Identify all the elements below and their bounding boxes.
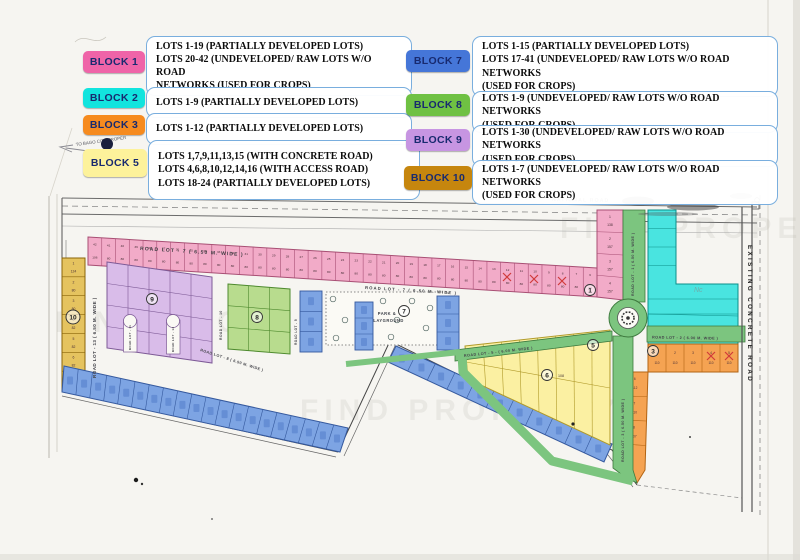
lot-number: 110	[672, 361, 677, 365]
lot-marker	[595, 445, 601, 453]
lot-number: 80	[162, 260, 166, 264]
lot-marker	[222, 410, 228, 418]
lot-marker	[334, 434, 340, 442]
legend-line: LOTS 4,6,8,10,12,14,16 (WITH ACCESS ROAD…	[158, 163, 410, 176]
lot-number: 80	[148, 259, 152, 263]
lot-number: 6	[73, 356, 75, 360]
road-label-11: ROAD LOT - 11	[128, 325, 132, 350]
lot-number: 80	[437, 277, 441, 281]
lot-number: 80	[107, 256, 111, 260]
lot-number: 27	[300, 255, 304, 259]
lot-number: 80	[410, 275, 414, 279]
lot-number: 80	[286, 267, 290, 271]
legend-line: LOTS 1-15 (PARTIALLY DEVELOPED LOTS)	[482, 40, 768, 53]
legend-line: (USED FOR CROPS)	[482, 189, 768, 202]
lot-number: 82	[72, 364, 76, 368]
block1-lot-column: 1138215731574157	[597, 210, 623, 300]
lot-number: 80	[465, 278, 469, 282]
scan-edge-bottom	[0, 554, 800, 560]
legend-badge-block-3: BLOCK 3	[83, 115, 145, 135]
lot-number: 80	[478, 279, 482, 283]
concrete-road-label: EXISTING CONCRETE ROAD	[746, 245, 753, 383]
road-label-12: ROAD LOT - 12	[171, 327, 175, 352]
lot-number: 5	[73, 337, 75, 341]
lot-number: 8	[562, 271, 564, 275]
lot-number: 13	[492, 267, 496, 271]
lot-number: 80	[451, 278, 455, 282]
legend-badge-block-2: BLOCK 2	[83, 88, 145, 108]
lot-marker	[308, 318, 314, 326]
lot-number: 1	[73, 261, 75, 265]
lot-marker	[292, 425, 298, 433]
lot-marker	[445, 337, 451, 345]
park-playground: PARK & PLAYGROUND	[326, 292, 448, 345]
road-label-13: ROAD LOT - 13 ( 6.50 M. WIDE )	[92, 297, 97, 378]
lot-marker	[123, 389, 129, 397]
lot-marker	[458, 382, 464, 390]
svg-text:8: 8	[255, 314, 259, 321]
legend-line: LOTS 1-30 (UNDEVELOPED/ RAW LOTS W/O ROA…	[482, 126, 768, 152]
marker-block-7: 7	[399, 306, 410, 317]
legend-box-block-10: LOTS 1-7 (UNDEVELOPED/ RAW LOTS W/O ROAD…	[472, 160, 778, 205]
lot-number: 20	[396, 261, 400, 265]
lot-marker	[306, 428, 312, 436]
lot-number: 80	[258, 266, 262, 270]
lot-number: 106	[92, 255, 97, 259]
lot-marker	[308, 338, 314, 346]
svg-text:7: 7	[402, 308, 406, 315]
lot-marker	[151, 395, 157, 403]
svg-text:5: 5	[591, 342, 595, 349]
lot-number: 80	[533, 283, 537, 287]
lot-number: 21	[382, 260, 386, 264]
legend-line: LOTS 1-7 (UNDEVELOPED/ RAW LOTS W/O ROAD…	[482, 163, 768, 189]
lot-number: 14	[478, 266, 482, 270]
lot-number: 30	[258, 253, 262, 257]
lot-number: 6	[634, 377, 636, 381]
legend-badge-block-9: BLOCK 9	[406, 129, 470, 151]
lot-marker	[445, 301, 451, 309]
lot-marker	[208, 407, 214, 415]
legend-badge-block-8: BLOCK 8	[406, 94, 470, 116]
lot-marker	[361, 338, 367, 346]
lot-number: 157	[607, 289, 613, 293]
lot-number: 138	[607, 223, 613, 227]
lot-number: 1	[609, 215, 611, 219]
lot-marker	[361, 306, 367, 314]
road-lot-3	[613, 336, 637, 483]
lot-marker	[418, 364, 424, 372]
lot-number: 157	[607, 245, 613, 249]
lot-number: 80	[272, 266, 276, 270]
lot-marker	[308, 297, 314, 305]
legend-line: LOTS 20-42 (UNDEVELOPED/ RAW LOTS W/O RO…	[156, 53, 402, 79]
lot-number: 80	[134, 258, 138, 262]
lot-number: 42	[93, 242, 97, 246]
lot-number: 80	[506, 281, 510, 285]
legend-line: LOTS 17-41 (UNDEVELOPED/ RAW LOTS W/O RO…	[482, 53, 768, 79]
lot-number: 124	[71, 269, 77, 273]
lot-marker	[236, 413, 242, 421]
lot-marker	[536, 418, 542, 426]
lot-number: 25	[327, 257, 331, 261]
park-label-1: PARK &	[378, 311, 396, 316]
lot-number: 80	[341, 271, 345, 275]
legend-line: LOTS 1-19 (PARTIALLY DEVELOPED LOTS)	[156, 40, 402, 53]
lot-number: 110	[654, 361, 659, 365]
legend-box-block-7: LOTS 1-15 (PARTIALLY DEVELOPED LOTS) LOT…	[472, 36, 778, 97]
svg-text:3: 3	[651, 348, 655, 355]
lot-number: 40	[121, 244, 125, 248]
lot-number: 110	[726, 361, 731, 365]
lot-marker	[556, 427, 562, 435]
lot-number: 3	[609, 259, 611, 263]
watermark-text: FIND PROPERTY	[560, 212, 800, 245]
lot-number: 110	[708, 361, 713, 365]
legend-badge-block-7: BLOCK 7	[406, 50, 470, 72]
legend-box-block-5: LOTS 1,7,9,11,13,15 (WITH CONCRETE ROAD)…	[148, 140, 420, 200]
lot-number: 17	[437, 264, 441, 268]
lot-number: 11	[520, 269, 523, 273]
lot-number: 3	[73, 299, 75, 303]
roundabout	[609, 299, 647, 337]
lot-number: 80	[244, 265, 248, 269]
lot-number: 80	[189, 261, 193, 265]
lot-number: 80	[176, 261, 180, 265]
lot-number: 80	[382, 273, 386, 277]
road-label-3: ROAD LOT - 3 ( 6.50 M. WIDE )	[621, 398, 625, 462]
legend-line: LOTS 1,7,9,11,13,15 (WITH CONCRETE ROAD)	[158, 150, 410, 163]
lot-number: 80	[561, 284, 565, 288]
lot-number: 39	[134, 245, 138, 249]
lot-number: 18	[423, 263, 427, 267]
lot-number: 80	[300, 268, 304, 272]
lot-number: 80	[203, 262, 207, 266]
road-label-9: ROAD LOT - 9	[294, 319, 298, 345]
lot-marker	[179, 401, 185, 409]
lot-number: 80	[492, 280, 496, 284]
lot-number: 8	[633, 426, 635, 430]
lot-number: 80	[547, 284, 551, 288]
lot-number: 10	[533, 270, 537, 274]
lot-marker	[320, 431, 326, 439]
lot-number: 110	[690, 361, 695, 365]
block7-lot-column-mid	[355, 302, 373, 350]
lot-number: 80	[327, 270, 331, 274]
lot-number: 29	[272, 253, 276, 257]
svg-text:1: 1	[588, 287, 592, 294]
lot-number: 80	[355, 272, 359, 276]
marker-block-10: 10	[66, 310, 80, 324]
lot-number: 41	[107, 243, 111, 247]
lot-marker	[67, 377, 73, 385]
legend-line: LOTS 1-9 (PARTIALLY DEVELOPED LOTS)	[156, 96, 402, 109]
lot-marker	[193, 404, 199, 412]
culdesac-bulb	[167, 315, 180, 328]
legend-badge-block-10: BLOCK 10	[404, 166, 472, 190]
lot-marker	[165, 398, 171, 406]
block7-lot-column-right	[437, 296, 459, 350]
lot-marker	[95, 383, 101, 391]
scan-artifact-text: Nc	[694, 287, 703, 294]
lot-number: 80	[396, 274, 400, 278]
lot-marker	[109, 386, 115, 394]
park-label-2: PLAYGROUND	[370, 318, 404, 323]
lot-number: 80	[121, 257, 125, 261]
lot-marker	[517, 409, 523, 417]
block3-lot-row: 11102110311041105110	[648, 344, 738, 372]
to-bago-label: TO BAGO CITY PROPER	[75, 135, 126, 147]
lot-number: 28	[286, 254, 290, 258]
lot-number: 24	[341, 258, 345, 262]
legend-line: LOTS 1-9 (UNDEVELOPED/ RAW LOTS W/O ROAD…	[482, 92, 768, 118]
lot-number: 80	[231, 264, 235, 268]
lot-number: 4	[609, 281, 611, 285]
lot-number: 23	[355, 259, 359, 263]
lot-number: 157	[607, 267, 613, 271]
lot-number: 80	[423, 276, 427, 280]
lot-area: 108	[558, 374, 564, 378]
marker-block-9: 9	[147, 294, 158, 305]
marker-block-8: 8	[252, 312, 263, 323]
lot-marker	[445, 319, 451, 327]
lot-number: 15	[465, 265, 469, 269]
lot-number: 6	[589, 273, 591, 277]
lot-number: 7	[634, 401, 636, 405]
lot-number: 2	[73, 280, 75, 284]
svg-text:9: 9	[150, 296, 154, 303]
lot-number: 2	[674, 351, 676, 355]
lot-number: 12	[506, 268, 510, 272]
road-label-1: ROAD LOT - 1 ( 6.50 M. WIDE )	[631, 232, 635, 296]
lot-marker	[137, 392, 143, 400]
scan-edge-right	[793, 0, 800, 560]
lot-number: 80	[72, 288, 76, 292]
lot-number: 3	[692, 351, 694, 355]
legend-badge-block-1: BLOCK 1	[83, 51, 145, 73]
lot-marker	[250, 416, 256, 424]
marker-block-1: 1	[585, 285, 596, 296]
lot-number: 16	[451, 265, 455, 269]
marker-block-5: 5	[588, 340, 599, 351]
scanned-subdivision-plan: { "watermark": "FIND PROPERTY", "legend"…	[0, 0, 800, 560]
lot-number: 80	[575, 285, 579, 289]
road-label-10: ROAD LOT - 10	[219, 310, 223, 340]
lot-number: 19	[410, 262, 414, 266]
lot-marker	[361, 322, 367, 330]
lot-number: 80	[217, 263, 221, 267]
marker-block-3: 3	[648, 346, 659, 357]
legend-line: LOTS 18-24 (PARTIALLY DEVELOPED LOTS)	[158, 177, 410, 190]
lot-number: 82	[72, 326, 76, 330]
lot-number: 82	[72, 345, 76, 349]
legend-line: LOTS 1-12 (PARTIALLY DEVELOPED LOTS)	[156, 122, 402, 135]
lot-number: 80	[313, 269, 317, 273]
legend-badge-block-5: BLOCK 5	[83, 149, 147, 177]
lot-number: 22	[368, 259, 372, 263]
lot-number: 7	[575, 272, 577, 276]
lot-number: 31	[244, 252, 248, 256]
svg-text:6: 6	[545, 372, 549, 379]
block7-lot-column-left	[300, 291, 322, 352]
lot-marker	[278, 422, 284, 430]
lot-marker	[438, 373, 444, 381]
lot-marker	[81, 380, 87, 388]
lot-marker	[264, 419, 270, 427]
lot-number: 26	[313, 256, 317, 260]
svg-text:10: 10	[69, 315, 77, 322]
lot-number: 80	[520, 282, 524, 286]
lot-marker	[576, 436, 582, 444]
lot-number: 80	[368, 272, 372, 276]
lot-number: 2	[609, 237, 611, 241]
lot-number: 9	[548, 271, 550, 275]
